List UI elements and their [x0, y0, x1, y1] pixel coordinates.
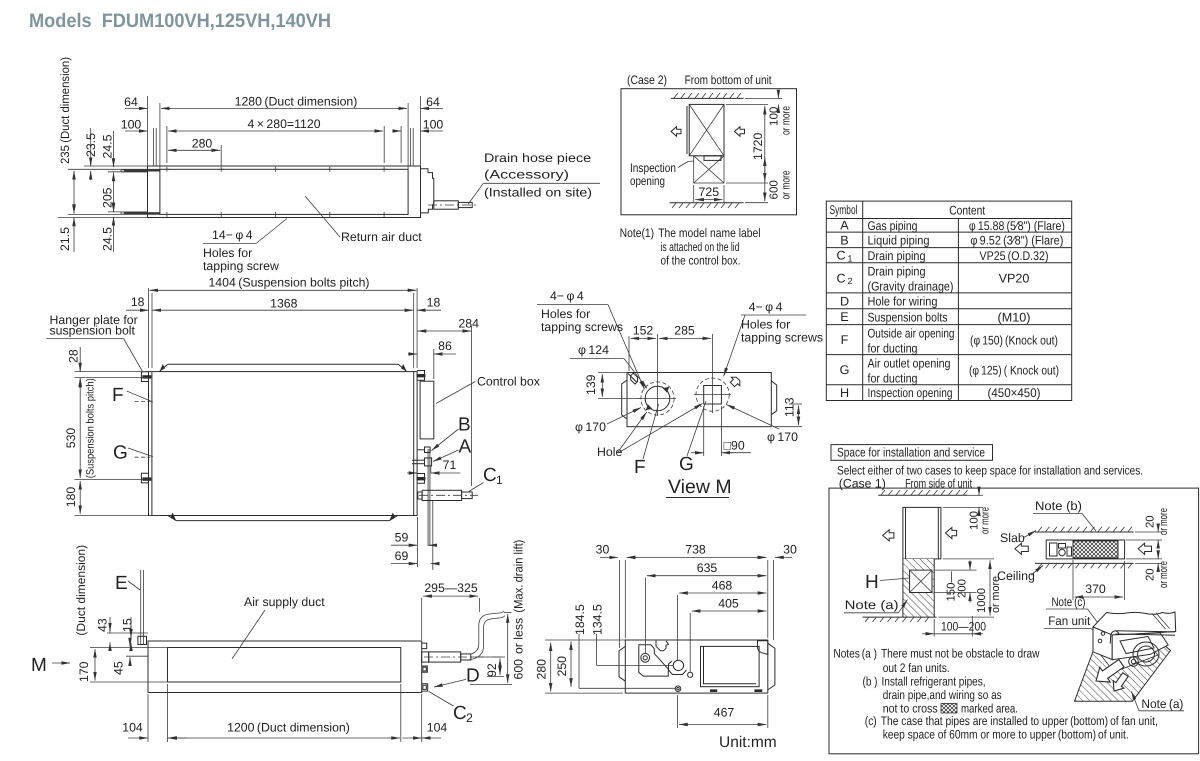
- svg-text:(M10): (M10): [998, 310, 1031, 324]
- svg-text:Drain piping: Drain piping: [868, 249, 926, 263]
- svg-text:24.5: 24.5: [101, 227, 115, 251]
- svg-text:Note (b): Note (b): [1035, 499, 1082, 513]
- svg-text:tapping screw: tapping screw: [203, 259, 279, 273]
- svg-text:B: B: [458, 415, 471, 436]
- svg-text:Fan unit: Fan unit: [1048, 614, 1091, 628]
- svg-text:C: C: [453, 703, 467, 724]
- svg-text:45: 45: [112, 661, 126, 675]
- svg-text:28: 28: [67, 349, 81, 363]
- svg-text:Space for installation and ser: Space for installation and service: [837, 446, 985, 460]
- svg-text:(Installed on site): (Installed on site): [484, 186, 592, 200]
- svg-text:69: 69: [395, 549, 409, 563]
- svg-text:Air supply duct: Air supply duct: [244, 595, 325, 609]
- svg-text:285: 285: [674, 324, 695, 338]
- svg-text:Note (a): Note (a): [1141, 697, 1183, 711]
- svg-text:keep space of 60mm or more to: keep space of 60mm or more to upper (bot…: [883, 728, 1129, 742]
- svg-text:or more: or more: [980, 507, 992, 534]
- svg-text:15: 15: [121, 618, 135, 632]
- svg-text:200: 200: [957, 579, 969, 598]
- svg-text:71: 71: [443, 458, 457, 472]
- svg-text:20: 20: [1145, 515, 1157, 528]
- svg-text:Control box: Control box: [477, 375, 541, 389]
- svg-text:F: F: [634, 457, 646, 478]
- svg-text:Hole: Hole: [597, 445, 622, 459]
- svg-text:1200 (Duct dimension): 1200 (Duct dimension): [227, 721, 350, 735]
- svg-text:18: 18: [427, 296, 441, 310]
- svg-text:2: 2: [848, 276, 853, 286]
- svg-text:180: 180: [64, 487, 78, 508]
- svg-text:20: 20: [1145, 568, 1157, 581]
- svg-text:(Duct dimension): (Duct dimension): [74, 545, 88, 638]
- svg-text:Note (a): Note (a): [845, 598, 899, 612]
- svg-text:4− φ 4: 4− φ 4: [550, 289, 584, 303]
- svg-text:(Accessory): (Accessory): [484, 168, 569, 182]
- svg-text:2: 2: [466, 711, 473, 725]
- svg-text:1: 1: [848, 254, 853, 264]
- svg-text:738: 738: [685, 543, 706, 557]
- svg-text:59: 59: [395, 531, 409, 545]
- svg-text:out 2 fan units.: out 2 fan units.: [883, 661, 950, 675]
- svg-text:64: 64: [426, 95, 440, 109]
- svg-text:100—200: 100—200: [941, 620, 986, 634]
- svg-text:M: M: [31, 655, 47, 676]
- svg-text:468: 468: [712, 579, 733, 593]
- svg-text:43: 43: [96, 618, 110, 632]
- svg-text:1: 1: [496, 473, 503, 487]
- svg-text:Drain hose piece: Drain hose piece: [484, 151, 591, 165]
- svg-text:104: 104: [122, 721, 143, 735]
- svg-text:Liquid piping: Liquid piping: [868, 234, 930, 248]
- svg-text:1720: 1720: [751, 132, 765, 160]
- svg-text:139: 139: [584, 374, 598, 395]
- svg-text:635: 635: [697, 561, 718, 575]
- svg-text:170: 170: [77, 661, 91, 682]
- svg-text:Models FDUM100VH,125VH,140VH: Models FDUM100VH,125VH,140VH: [29, 10, 331, 32]
- svg-text:(450×450): (450×450): [988, 386, 1041, 400]
- svg-text:F: F: [112, 385, 124, 406]
- svg-text:or more: or more: [1158, 508, 1170, 535]
- svg-text:Gas piping: Gas piping: [868, 219, 918, 233]
- svg-text:184.5: 184.5: [573, 604, 587, 635]
- svg-text:Note(1) The model name label: Note(1) The model name label: [620, 226, 761, 240]
- svg-text:30: 30: [596, 543, 610, 557]
- svg-text:Inspection opening: Inspection opening: [868, 386, 953, 400]
- svg-text:(Case 2): (Case 2): [627, 73, 667, 87]
- svg-text:134.5: 134.5: [591, 604, 605, 635]
- svg-text:suspension bolt: suspension bolt: [50, 324, 136, 338]
- svg-text:drain pipe,and wiring so as: drain pipe,and wiring so as: [883, 688, 1002, 702]
- svg-text:(Suspension bolts pitch): (Suspension bolts pitch): [85, 378, 97, 478]
- svg-text:280: 280: [535, 659, 549, 680]
- svg-text:for ducting: for ducting: [868, 371, 918, 385]
- svg-text:104: 104: [427, 721, 448, 735]
- svg-text:21.5: 21.5: [58, 227, 72, 251]
- svg-text:467: 467: [714, 706, 735, 720]
- svg-text:30: 30: [783, 543, 797, 557]
- svg-text:Suspension bolts: Suspension bolts: [868, 310, 948, 324]
- svg-text:φ 170: φ 170: [575, 420, 606, 434]
- svg-text:1000: 1000: [976, 588, 988, 613]
- svg-text:Symbol: Symbol: [830, 203, 858, 217]
- svg-text:φ 170: φ 170: [767, 430, 798, 444]
- svg-text:(Max. drain lift): (Max. drain lift): [512, 540, 526, 613]
- svg-text:295—325: 295—325: [424, 581, 477, 595]
- svg-text:E: E: [840, 310, 848, 324]
- svg-text:Drain piping: Drain piping: [868, 264, 926, 278]
- svg-text:14− φ 4: 14− φ 4: [212, 228, 253, 242]
- svg-text:23.5: 23.5: [84, 133, 98, 157]
- svg-text:C: C: [836, 271, 845, 285]
- svg-text:F: F: [841, 333, 849, 347]
- svg-text:G: G: [840, 363, 850, 377]
- svg-text:Holes for: Holes for: [541, 307, 590, 321]
- svg-text:1280 (Duct dimension): 1280 (Duct dimension): [235, 95, 358, 109]
- svg-text:H: H: [840, 386, 849, 400]
- svg-text:92: 92: [485, 663, 499, 677]
- svg-text:A: A: [840, 219, 849, 233]
- svg-text:VP20: VP20: [999, 272, 1030, 286]
- svg-text:G: G: [679, 454, 694, 475]
- svg-text:600 or less: 600 or less: [512, 618, 526, 680]
- svg-text:Inspection: Inspection: [630, 161, 676, 175]
- svg-text:250: 250: [555, 656, 569, 677]
- svg-text:From bottom of unit: From bottom of unit: [685, 73, 772, 87]
- svg-text:Outside air opening: Outside air opening: [868, 326, 955, 340]
- svg-text:of the control box.: of the control box.: [661, 254, 741, 268]
- svg-text:Hole for wiring: Hole for wiring: [868, 295, 938, 309]
- svg-text:(c) The case that pipes are i: (c) The case that pipes are installed to…: [865, 714, 1158, 728]
- svg-text:VP25 (O.D.32): VP25 (O.D.32): [980, 249, 1049, 263]
- svg-text:View M: View M: [668, 476, 732, 498]
- svg-text:(φ 150) (Knock out): (φ 150) (Knock out): [970, 333, 1058, 347]
- svg-text:for ducting: for ducting: [868, 341, 918, 355]
- svg-text:1368: 1368: [270, 297, 298, 311]
- svg-text:is attached on the lid: is attached on the lid: [661, 240, 740, 254]
- svg-text:4− φ 4: 4− φ 4: [749, 300, 783, 314]
- svg-text:B: B: [840, 233, 848, 247]
- svg-text:370: 370: [1085, 582, 1106, 596]
- svg-text:1404 (Suspension bolts pitch): 1404 (Suspension bolts pitch): [208, 276, 369, 290]
- svg-text:Holes for: Holes for: [741, 318, 790, 332]
- svg-text:284: 284: [458, 317, 479, 331]
- svg-text:or more: or more: [780, 106, 793, 135]
- svg-text:G: G: [113, 443, 128, 464]
- svg-text:(φ 125) ( Knock out): (φ 125) ( Knock out): [969, 363, 1059, 377]
- svg-text:280: 280: [192, 137, 213, 151]
- svg-text:Ceiling: Ceiling: [997, 569, 1035, 583]
- svg-text:Unit:mm: Unit:mm: [719, 734, 777, 751]
- svg-text:A: A: [459, 437, 472, 458]
- svg-text:φ 9.52 (3∕8") (Flare): φ 9.52 (3∕8") (Flare): [970, 234, 1063, 248]
- svg-text:Holes for: Holes for: [203, 246, 252, 260]
- svg-text:4 × 280=1120: 4 × 280=1120: [247, 117, 320, 131]
- svg-text:(b ) Install refrigerant pipe: (b ) Install refrigerant pipes,: [863, 675, 986, 689]
- svg-text:24.5: 24.5: [101, 134, 115, 158]
- svg-text:Note (c): Note (c): [1052, 595, 1086, 609]
- svg-text:405: 405: [718, 597, 739, 611]
- svg-text:tapping screws: tapping screws: [741, 331, 823, 345]
- svg-text:235 (Duct dimension): 235 (Duct dimension): [58, 57, 72, 164]
- svg-text:113: 113: [783, 397, 797, 417]
- svg-text:Content: Content: [949, 204, 985, 218]
- svg-text:D: D: [466, 666, 480, 687]
- svg-text:Return air duct: Return air duct: [341, 230, 422, 244]
- svg-text:(Gravity drainage): (Gravity drainage): [868, 279, 954, 293]
- svg-text:tapping screws: tapping screws: [541, 320, 623, 334]
- svg-text:opening: opening: [630, 174, 665, 188]
- svg-text:18: 18: [131, 295, 145, 309]
- svg-text:86: 86: [438, 339, 452, 353]
- svg-text:530: 530: [64, 428, 78, 449]
- svg-text:Air outlet opening: Air outlet opening: [868, 356, 951, 370]
- svg-text:Notes (a ) There must not be: Notes (a ) There must not be obstacle to…: [833, 647, 1039, 661]
- svg-text:152: 152: [633, 324, 654, 338]
- svg-text:C: C: [836, 249, 845, 263]
- svg-text:C: C: [483, 465, 497, 486]
- svg-text:or more: or more: [1158, 561, 1170, 588]
- svg-text:H: H: [865, 572, 879, 593]
- svg-text:or more: or more: [780, 171, 793, 200]
- svg-text:100: 100: [423, 118, 444, 132]
- svg-text:φ 15.88 (5∕8") (Flare): φ 15.88 (5∕8") (Flare): [969, 219, 1065, 233]
- svg-text:E: E: [115, 573, 128, 594]
- svg-text:φ 124: φ 124: [578, 343, 609, 357]
- svg-text:725: 725: [699, 185, 720, 199]
- svg-text:64: 64: [124, 95, 138, 109]
- svg-text:205: 205: [101, 187, 115, 208]
- svg-text:D: D: [840, 294, 849, 308]
- svg-text:100: 100: [121, 118, 142, 132]
- svg-text:□90: □90: [724, 439, 745, 453]
